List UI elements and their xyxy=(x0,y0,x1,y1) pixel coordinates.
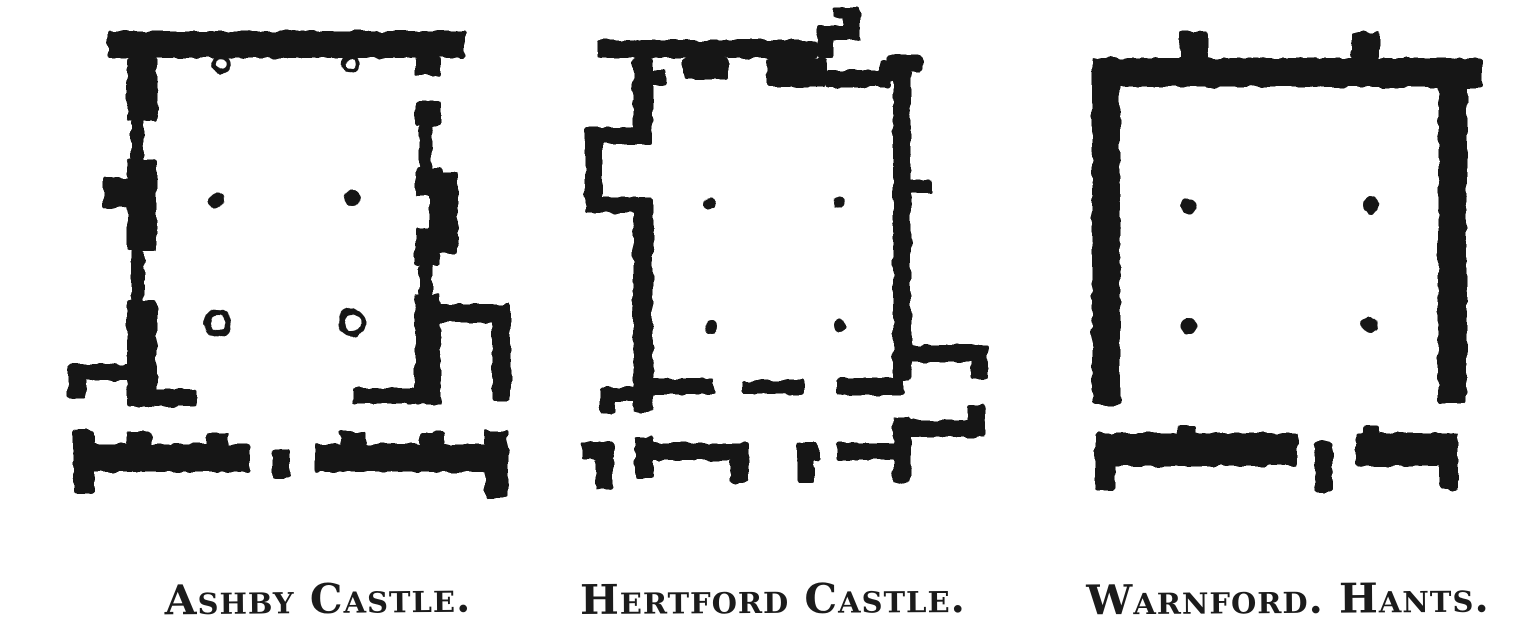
wall-segment xyxy=(415,228,441,265)
wall-segment xyxy=(103,177,128,208)
wall-segment xyxy=(600,387,615,414)
wall-segment xyxy=(837,443,904,460)
door-mark-icon xyxy=(344,57,358,71)
plan-warnford-hants xyxy=(1092,32,1482,492)
column-dot-icon xyxy=(704,198,716,210)
wall-segment xyxy=(596,458,613,490)
column-base-open-icon xyxy=(341,312,363,334)
wall-segment xyxy=(837,378,904,395)
plans-canvas xyxy=(0,0,1528,545)
wall-segment xyxy=(272,450,289,478)
wall-segment xyxy=(1315,442,1332,492)
wall-segment xyxy=(415,100,441,126)
wall-segment xyxy=(73,444,250,472)
wall-segment xyxy=(132,389,197,406)
wall-segment xyxy=(127,58,157,121)
wall-segment xyxy=(598,40,817,58)
wall-segment xyxy=(880,60,895,81)
wall-segment xyxy=(68,364,87,398)
wall-segment xyxy=(205,433,229,445)
wall-segment xyxy=(1352,32,1379,60)
wall-segment xyxy=(797,443,819,460)
column-dot-icon xyxy=(1181,199,1197,215)
wall-segment xyxy=(582,442,614,459)
wall-segment xyxy=(683,58,728,79)
wall-segment xyxy=(898,420,985,437)
wall-segment xyxy=(1439,433,1458,490)
wall-segment xyxy=(893,58,911,380)
column-dot-icon xyxy=(833,197,845,209)
wall-segment xyxy=(1438,58,1467,404)
wall-segment xyxy=(1092,58,1120,405)
wall-segment xyxy=(340,431,366,445)
wall-segment xyxy=(635,443,748,460)
wall-segment xyxy=(968,404,985,422)
plan-label-ashby-castle: Ashby Castle. xyxy=(88,566,549,640)
wall-segment xyxy=(126,431,152,445)
wall-segment xyxy=(127,160,157,251)
column-dot-icon xyxy=(1363,197,1379,213)
wall-segment xyxy=(833,7,860,19)
scanned-plate: Ashby Castle. Hertford Castle. Warnford.… xyxy=(0,0,1528,641)
wall-segment xyxy=(650,70,667,85)
wall-segment xyxy=(419,264,432,295)
wall-segment xyxy=(910,179,932,193)
wall-segment xyxy=(315,444,503,472)
wall-segment xyxy=(131,250,144,301)
wall-segment xyxy=(797,458,814,483)
column-dot-icon xyxy=(834,320,846,332)
column-dot-icon xyxy=(345,190,361,206)
column-dot-icon xyxy=(208,192,224,208)
plan-label-warnford-hants: Warnford. Hants. xyxy=(1068,566,1508,639)
wall-segment xyxy=(108,31,465,58)
wall-segment xyxy=(1362,426,1380,435)
column-base-open-icon xyxy=(207,312,229,334)
wall-segment xyxy=(492,304,511,401)
plan-ashby-castle xyxy=(68,31,511,498)
wall-segment xyxy=(742,380,804,394)
wall-segment xyxy=(420,432,445,445)
wall-segment xyxy=(898,345,988,362)
plan-label-hertford-castle: Hertford Castle. xyxy=(558,567,988,639)
wall-segment xyxy=(353,388,416,404)
plan-hertford-castle xyxy=(582,7,988,490)
wall-segment xyxy=(1092,58,1482,87)
column-dot-icon xyxy=(1362,317,1378,333)
wall-segment xyxy=(415,58,441,76)
wall-segment xyxy=(767,58,827,87)
column-dot-icon xyxy=(705,321,717,333)
wall-segment xyxy=(1095,433,1297,466)
wall-segment xyxy=(1177,426,1195,435)
wall-segment xyxy=(485,430,508,498)
wall-segment xyxy=(642,378,714,395)
wall-segment xyxy=(971,360,988,379)
wall-segment xyxy=(419,125,432,168)
wall-segment xyxy=(730,458,748,483)
wall-segment xyxy=(131,120,144,161)
door-mark-icon xyxy=(214,57,228,71)
wall-segment xyxy=(1180,32,1208,60)
column-dot-icon xyxy=(1181,318,1197,334)
